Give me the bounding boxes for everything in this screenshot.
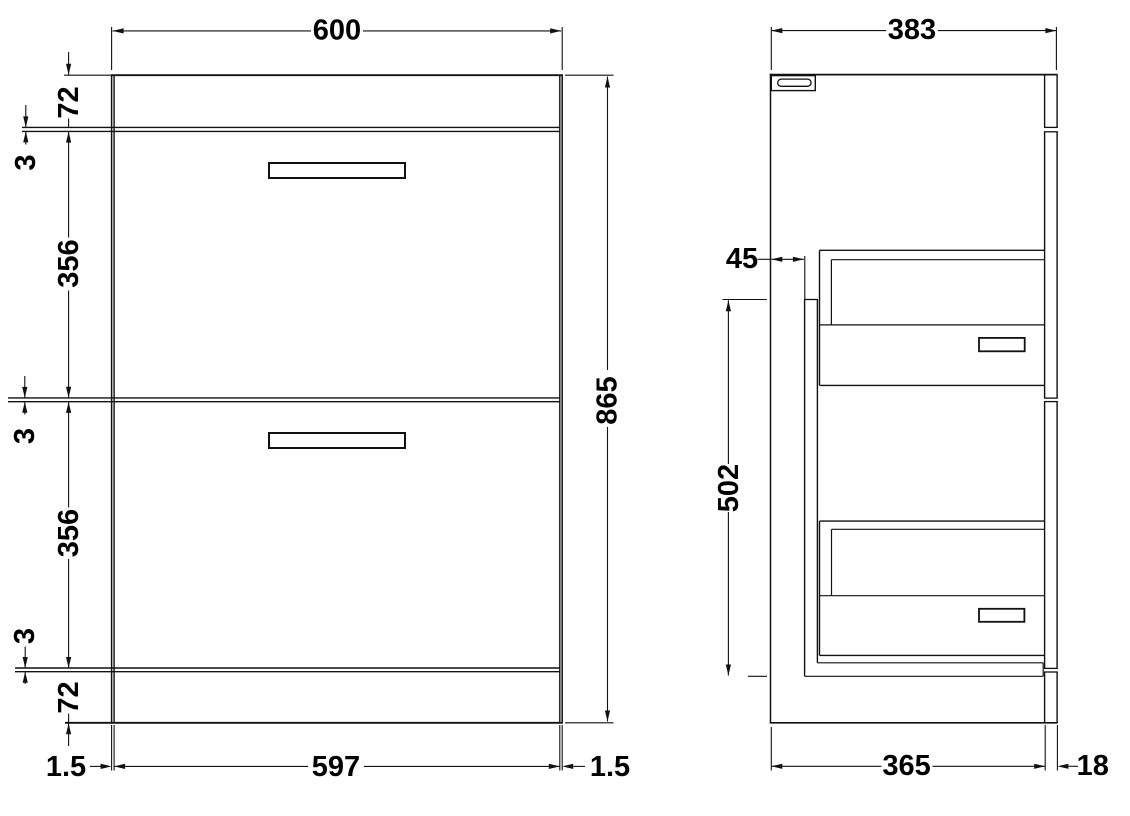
svg-text:3: 3 — [9, 628, 41, 644]
svg-text:1.5: 1.5 — [46, 751, 86, 783]
svg-text:45: 45 — [726, 243, 758, 275]
svg-text:502: 502 — [713, 464, 745, 512]
svg-text:72: 72 — [53, 681, 85, 713]
svg-text:3: 3 — [10, 154, 42, 170]
svg-text:356: 356 — [53, 239, 85, 287]
svg-text:18: 18 — [1077, 750, 1109, 782]
svg-text:865: 865 — [592, 376, 624, 424]
svg-text:72: 72 — [53, 86, 85, 118]
svg-text:356: 356 — [53, 509, 85, 557]
svg-text:600: 600 — [313, 15, 361, 47]
svg-text:3: 3 — [9, 428, 41, 444]
svg-text:1.5: 1.5 — [590, 751, 630, 783]
svg-text:597: 597 — [312, 751, 360, 783]
svg-text:383: 383 — [888, 14, 936, 46]
svg-text:365: 365 — [882, 750, 930, 782]
